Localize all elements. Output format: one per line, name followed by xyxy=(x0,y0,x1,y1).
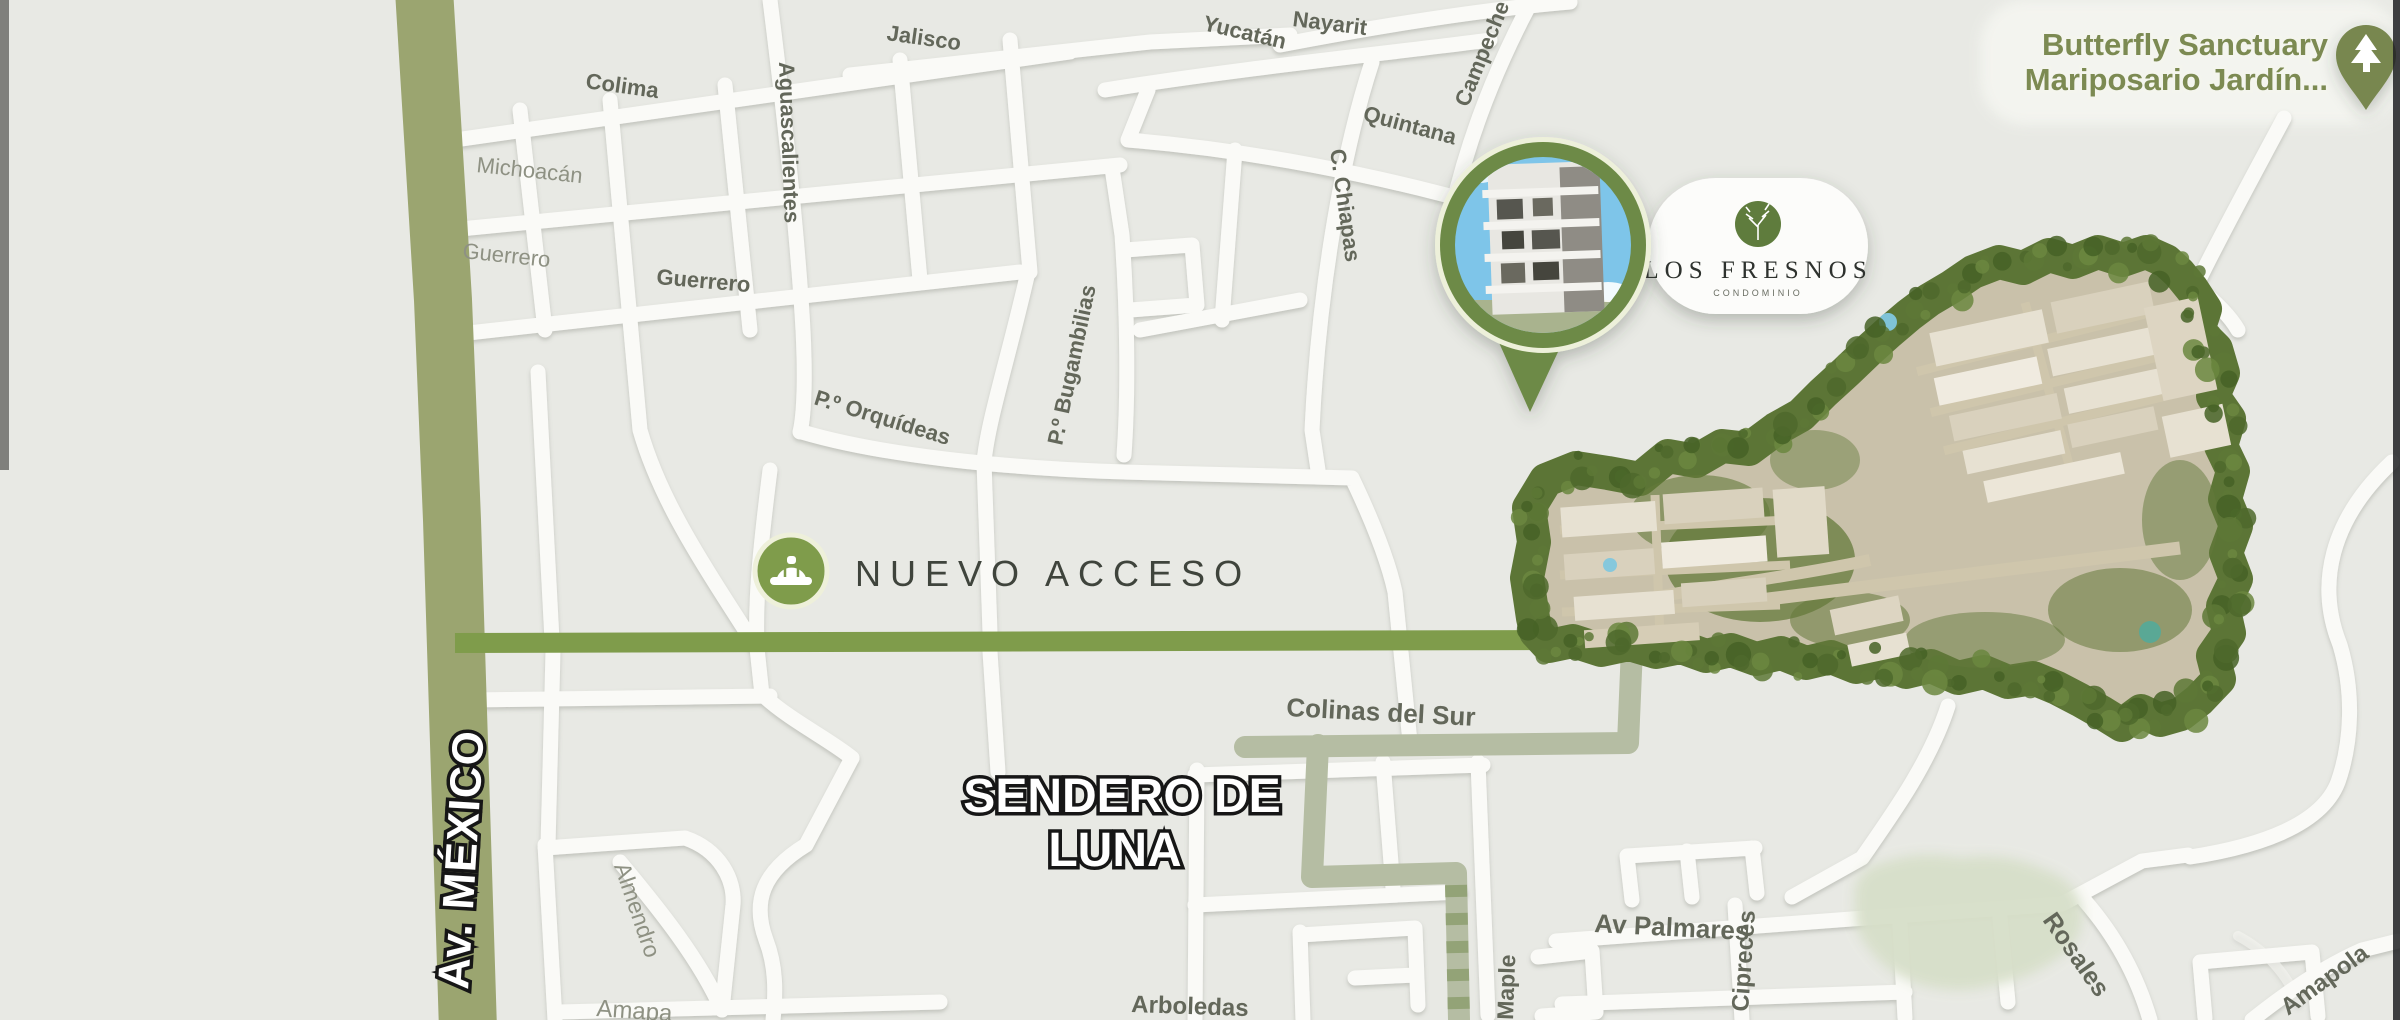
map-svg: Jalisco Nayarit Yucatán Campeche Quintan… xyxy=(0,0,2400,1020)
right-edge-sliver xyxy=(2393,0,2400,1020)
butterfly-line2: Mariposario Jardín... xyxy=(2025,62,2328,97)
building-photo xyxy=(1455,157,1631,333)
site-pool-left xyxy=(1603,558,1617,572)
sendero-line2: LUNA xyxy=(1048,824,1181,877)
left-edge-sliver xyxy=(0,0,9,470)
los-fresnos-pill: LOS FRESNOS CONDOMINIO xyxy=(1643,178,1872,314)
nuevo-acceso-label: NUEVO ACCESO xyxy=(855,553,1251,594)
site-pond-dot xyxy=(2139,621,2161,643)
sendero-line1: SENDERO DE xyxy=(963,770,1280,823)
los-fresnos-brand: LOS FRESNOS xyxy=(1643,257,1872,284)
map-canvas: Jalisco Nayarit Yucatán Campeche Quintan… xyxy=(0,0,2400,1020)
butterfly-label: Butterfly Sanctuary Mariposario Jardín..… xyxy=(2025,27,2329,97)
butterfly-line1: Butterfly Sanctuary xyxy=(2042,27,2329,62)
street-label-maple: Maple xyxy=(1492,954,1520,1020)
road-nuevo-acceso xyxy=(455,640,1555,643)
street-label-amapa: Amapa xyxy=(596,995,674,1020)
street-label-arboledas: Arboledas xyxy=(1131,991,1249,1020)
los-fresnos-tagline: CONDOMINIO xyxy=(1713,288,1803,298)
